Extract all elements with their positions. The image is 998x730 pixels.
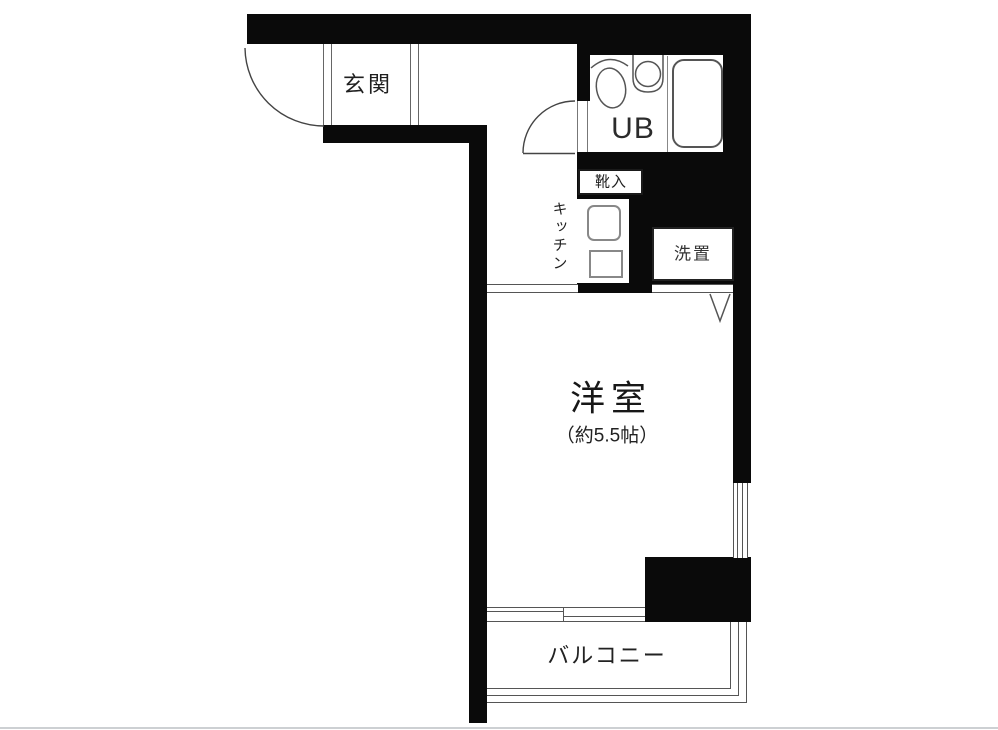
balcony-window-lines [487,607,645,622]
laundry-label: 洗置 [674,246,712,263]
shoe-cabinet-label: 靴入 [595,175,627,190]
bath-door-opening [575,101,590,152]
entrance-door-arc-icon [245,48,324,126]
room-opening-left [487,284,578,293]
kitchen-label: キッチン [552,201,567,273]
lineart-layer [0,0,998,730]
main-room-size: （約5.5帖） [556,427,658,446]
bath-label: UB [611,114,655,144]
wall-right [733,155,751,483]
entrance-label: 玄関 [343,74,393,96]
bath-door-arc-icon [523,101,575,153]
wall-top-bar [247,14,580,44]
room-entry-mark-icon [710,294,730,321]
side-window-gap [733,483,748,558]
main-room-label: 洋室 [570,382,652,417]
page-bottom-border [0,727,998,729]
wall-entrance-bottom [323,125,487,143]
floorplan-canvas: 玄関 UB 靴入 キッチン 洗置 洋室 （約5.5帖） バルコニー [0,0,998,730]
room-opening-right [652,284,733,293]
kitchen-counter [577,199,629,283]
wall-bottom-right-block [645,557,751,622]
balcony-label: バルコニー [547,645,667,667]
unit-bath-room [590,55,723,152]
wall-left [469,125,487,723]
